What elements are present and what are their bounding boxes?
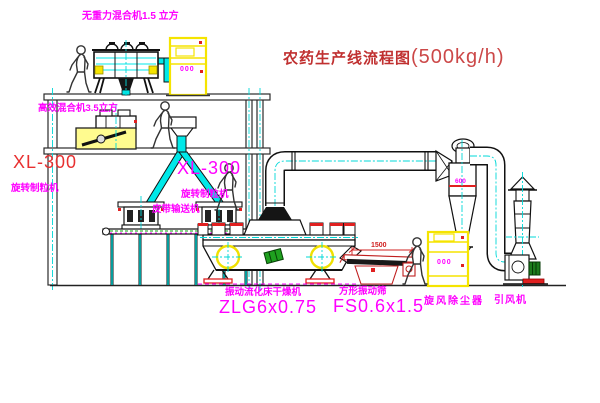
gravity-free-mixer xyxy=(92,40,170,96)
cad-flow-diagram: 无重力混合机1.5 立方 农药生产线流程图(500kg/h) 高效混合机3.5立… xyxy=(0,0,600,403)
dimension-sieve-1500: 1500 xyxy=(371,242,387,249)
diagram-title: 农药生产线流程图(500kg/h) xyxy=(283,46,505,69)
label-induced-draft-fan: 引风机 xyxy=(494,296,527,306)
indicator-dot xyxy=(200,70,203,73)
indicator-dot xyxy=(134,120,137,123)
label-dryer-model: ZLG6x0.75 xyxy=(219,298,317,316)
label-granulator-left-model: XL-300 xyxy=(13,153,77,171)
induced-draft-fan xyxy=(503,255,548,284)
label-cyclone: 旋风除尘器 xyxy=(424,297,484,307)
dryer-hood xyxy=(244,220,306,235)
title-capacity: (500kg/h) xyxy=(411,46,505,68)
dimension-cyclone-600: 600 xyxy=(455,179,466,186)
dryer-feet xyxy=(208,270,330,279)
indicator-dot xyxy=(461,264,464,267)
label-high-efficiency-mixer: 高效混合机3.5立方 xyxy=(38,104,118,114)
person-top-floor xyxy=(67,46,91,92)
label-gravity-free-mixer: 无重力混合机1.5 立方 xyxy=(82,12,179,22)
person-ground xyxy=(403,238,427,284)
indicator-dot xyxy=(461,236,464,239)
fan-base xyxy=(523,279,544,284)
duct-dryer-to-cyclone xyxy=(265,151,452,206)
cabinet-lower-indicator: 000 xyxy=(437,259,452,266)
indicator-dot xyxy=(199,41,202,44)
label-granulator-left-name: 旋转制粒机 xyxy=(11,184,59,194)
indicator-dot xyxy=(371,268,375,272)
fan-motor xyxy=(529,262,540,275)
label-sieve-model: FS0.6x1.5 xyxy=(333,297,424,315)
floor-slab-top xyxy=(44,94,270,100)
title-chinese: 农药生产线流程图 xyxy=(283,50,411,67)
label-granulator-right-name: 旋转制粒机 xyxy=(181,190,229,200)
person-second-floor xyxy=(151,102,175,148)
cabinet-upper-indicator: 000 xyxy=(180,66,195,73)
label-belt-conveyor: 皮带输送机 xyxy=(152,205,200,215)
label-granulator-right-model: XL-300 xyxy=(177,159,241,177)
indicator-dot xyxy=(118,208,121,211)
